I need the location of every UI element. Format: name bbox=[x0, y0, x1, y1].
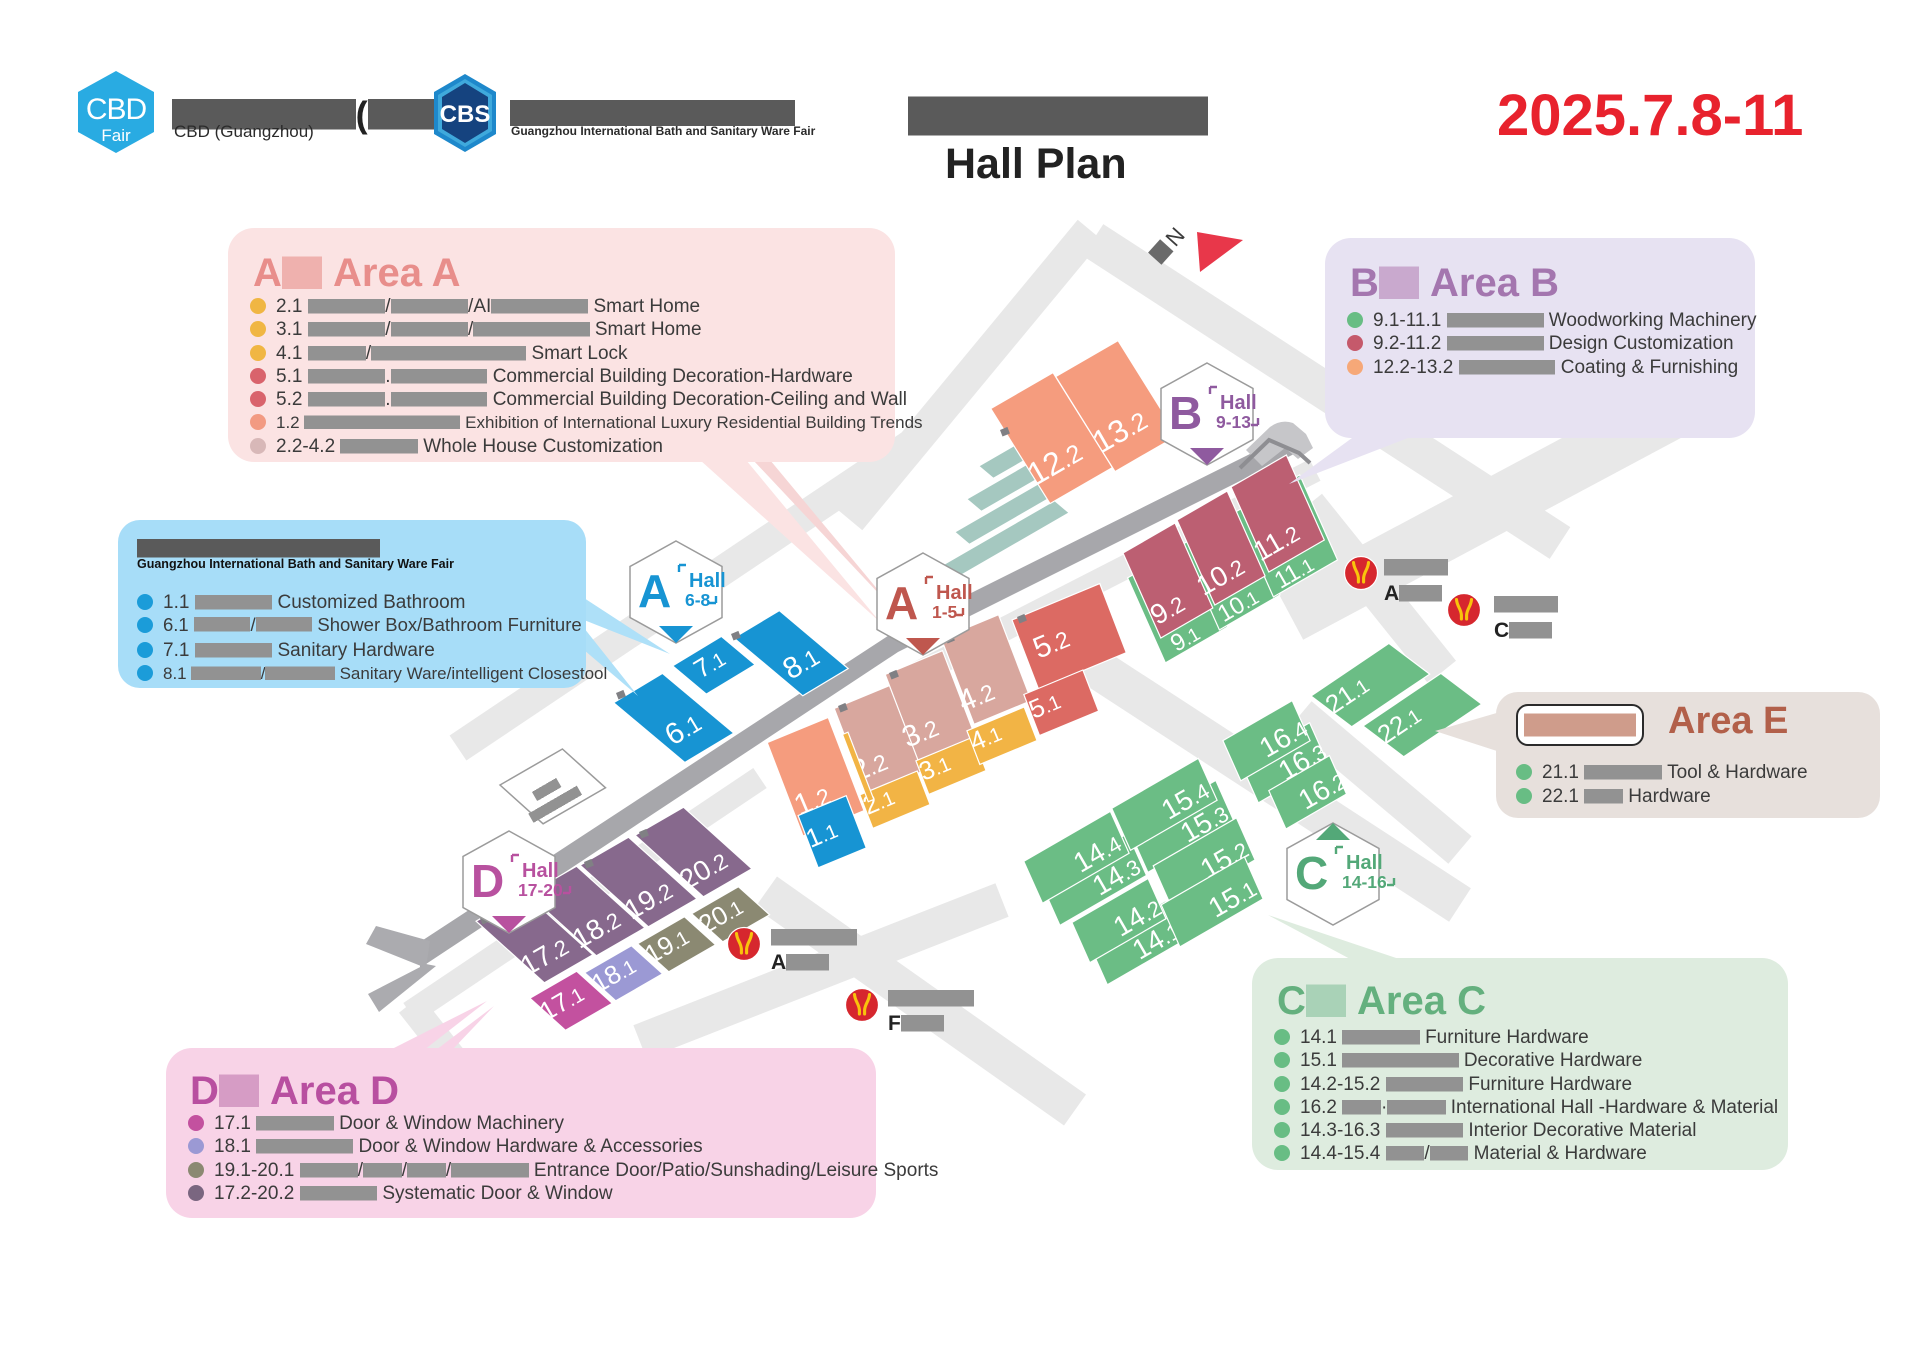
svg-text:Hall: Hall bbox=[936, 582, 973, 604]
svg-text:A: A bbox=[638, 565, 671, 617]
svg-text:Hall: Hall bbox=[522, 860, 559, 882]
svg-text:A: A bbox=[885, 577, 918, 629]
svg-text:CBS: CBS bbox=[440, 101, 491, 128]
svg-text:C: C bbox=[1295, 847, 1328, 899]
svg-text:6-8: 6-8 bbox=[685, 590, 711, 610]
svg-text:1-5: 1-5 bbox=[932, 602, 958, 622]
svg-text:CBD: CBD bbox=[86, 93, 147, 126]
svg-text:17-20: 17-20 bbox=[518, 880, 563, 900]
svg-text:B: B bbox=[1169, 387, 1202, 439]
svg-text:Fair: Fair bbox=[101, 126, 131, 145]
svg-text:D: D bbox=[471, 855, 504, 907]
svg-text:Hall: Hall bbox=[1346, 852, 1383, 874]
svg-text:Hall: Hall bbox=[689, 570, 726, 592]
svg-text:Hall: Hall bbox=[1220, 392, 1257, 414]
svg-text:14-16: 14-16 bbox=[1342, 872, 1387, 892]
svg-text:9-13: 9-13 bbox=[1216, 412, 1251, 432]
